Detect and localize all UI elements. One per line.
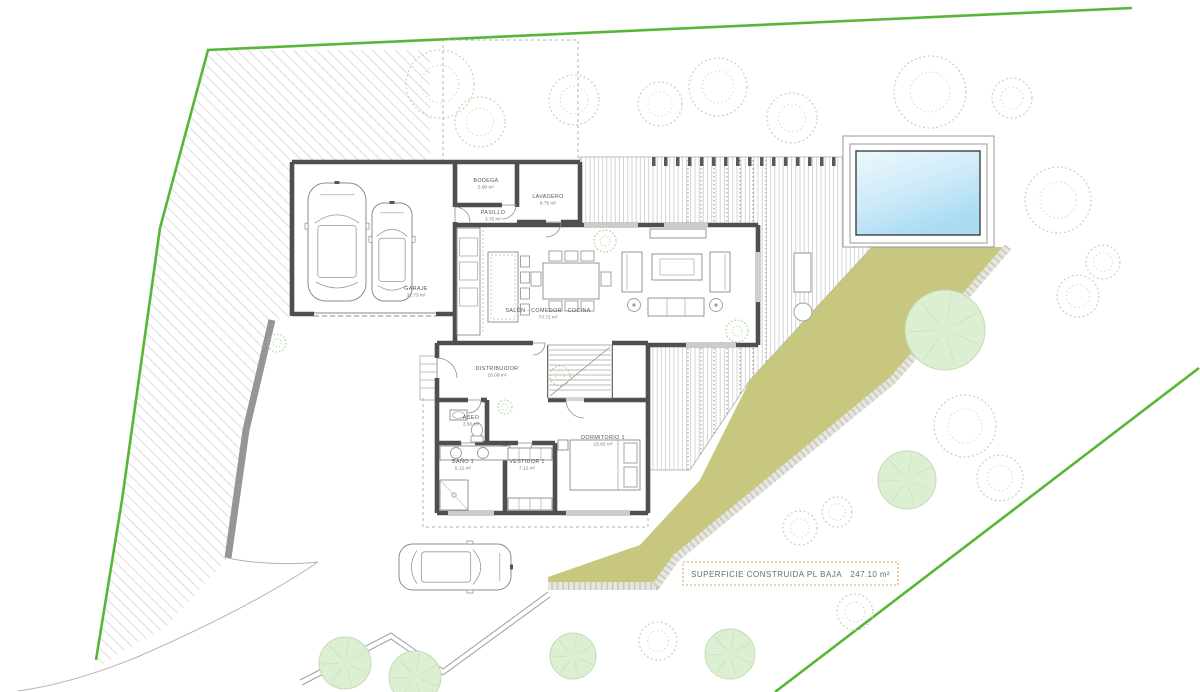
room-label: SALÓN - COMEDOR - COCINA [505, 307, 590, 314]
entry-steps [420, 356, 437, 400]
tree-icon [905, 290, 985, 370]
surface-summary-value: 247.10 m² [850, 570, 890, 579]
tree-icon [783, 511, 817, 545]
sofa [648, 298, 704, 316]
nightstand [558, 440, 568, 450]
tree-icon [894, 56, 966, 128]
room-area: 73.71 m² [539, 315, 558, 321]
tree-icon [550, 633, 596, 679]
armchair [622, 252, 642, 292]
furniture [457, 228, 480, 335]
tree-icon [639, 622, 677, 660]
room-label: BODEGA [473, 178, 498, 184]
tree-icon [767, 93, 817, 143]
room-label: GARAJE [404, 286, 428, 292]
kitchen-counter [457, 228, 483, 335]
room-label: LAVADERO [532, 194, 563, 200]
room-area: 7.12 m² [519, 466, 536, 472]
plant-icon [498, 400, 512, 414]
room-area: 5.90 m² [478, 185, 495, 191]
outdoor-lounge [794, 253, 811, 292]
wardrobes [508, 448, 552, 510]
garage-car-large [305, 181, 369, 301]
tree-icon [1086, 245, 1120, 279]
tree-icon [638, 82, 682, 126]
swimming-pool [843, 136, 994, 247]
road-edge [228, 558, 318, 564]
surface-summary-box: SUPERFICIE CONSTRUIDA PL BAJA 247.10 m² [683, 562, 898, 585]
pool-water [856, 151, 980, 235]
pillow [624, 467, 637, 487]
room-label: ASEO [463, 415, 479, 421]
room-area: 5.12 m² [455, 466, 472, 472]
tree-icon [992, 78, 1032, 118]
room-label: BAÑO 1 [452, 458, 474, 465]
floor-plan-canvas: BODEGA5.90 m²LAVADERO6.75 m²PASILLO3.75 … [0, 0, 1200, 692]
coffee-table [652, 254, 702, 280]
room-label: DISTRIBUIDOR [476, 366, 519, 372]
room-area: 6.75 m² [540, 201, 557, 207]
door-swing [566, 400, 584, 418]
outdoor-table [794, 303, 812, 321]
plant-icon [594, 230, 616, 252]
room-area: 15.82 m² [594, 442, 613, 448]
furniture [543, 263, 599, 299]
door-swing [437, 358, 457, 378]
driveway-car [399, 541, 513, 593]
room-area: 16.09 m² [488, 373, 507, 379]
tree-icon [319, 637, 371, 689]
door-swing [533, 343, 545, 355]
armchair [710, 252, 730, 292]
door-swing [455, 207, 470, 222]
room-label: VESTIDOR 1 [509, 459, 545, 465]
room-area: 3.50 m² [463, 422, 480, 428]
plant-icon [268, 334, 286, 352]
bathroom-fixtures [440, 446, 510, 510]
bed [570, 440, 640, 490]
upper-floor-outline [443, 40, 578, 162]
room-area: 3.75 m² [485, 217, 502, 223]
room-label: PASILLO [481, 210, 506, 216]
staircase [548, 345, 612, 398]
room-label: DORMITORIO 1 [581, 435, 625, 441]
basin [478, 448, 489, 459]
site-plan: BODEGA5.90 m²LAVADERO6.75 m²PASILLO3.75 … [0, 0, 1200, 692]
basin [451, 448, 462, 459]
tree-icon [977, 455, 1023, 501]
plant-icon [726, 320, 748, 342]
tree-icon [822, 497, 852, 527]
pillow [624, 443, 637, 463]
door-swing [468, 400, 481, 413]
tree-icon [389, 651, 441, 692]
surface-summary-label: SUPERFICIE CONSTRUIDA PL BAJA [691, 570, 842, 579]
tree-icon [837, 594, 873, 630]
tree-icon [705, 629, 755, 679]
dining-table [531, 251, 611, 311]
tree-icon [549, 75, 599, 125]
room-area: 32.73 m² [407, 293, 426, 299]
tree-icon [934, 395, 996, 457]
tree-icon [878, 451, 936, 509]
tree-icon [1057, 275, 1099, 317]
tree-icon [689, 58, 747, 116]
tree-icon [1025, 167, 1091, 233]
living-room-set [622, 229, 730, 316]
tv-unit [650, 229, 706, 238]
tree-icon [455, 97, 505, 147]
